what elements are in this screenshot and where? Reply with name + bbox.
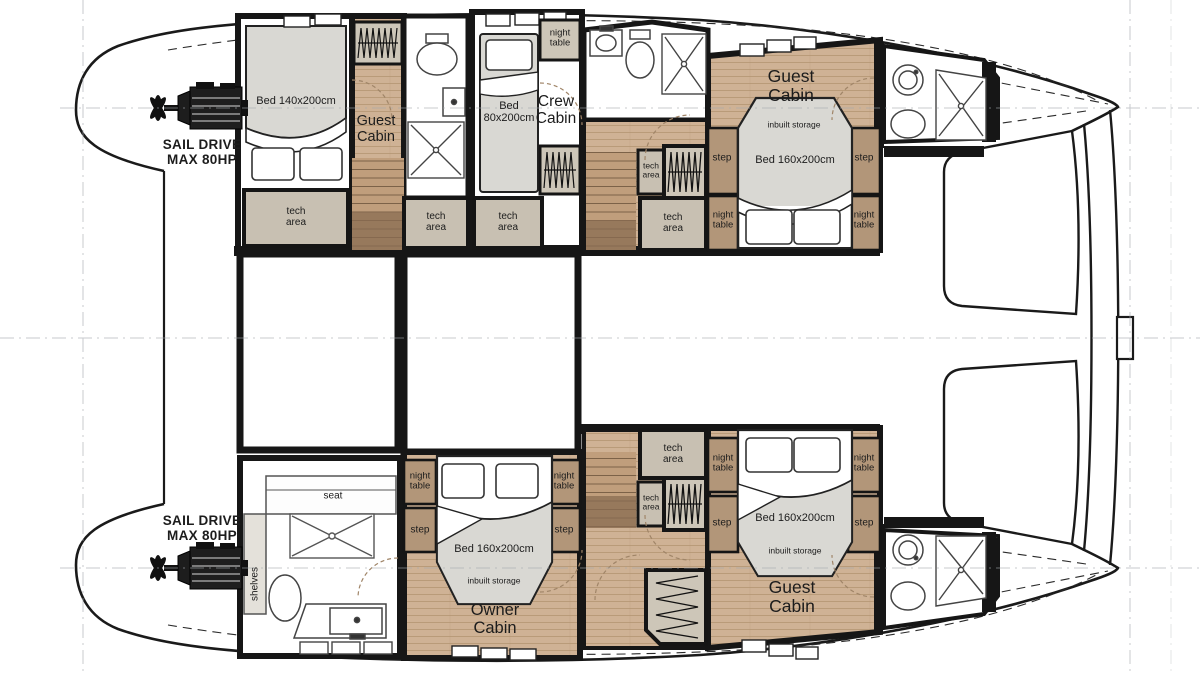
wardrobe-crew (540, 146, 580, 194)
toilet-aft-stbd (269, 575, 301, 621)
vanity-aft-stbd (294, 604, 386, 639)
shower-aft-port (408, 122, 464, 178)
pillow (746, 438, 792, 472)
night-table-box (404, 460, 436, 504)
toilet-fwd-stbd (891, 582, 925, 610)
toilet-fwd-port (891, 110, 925, 138)
tech-area-corridor-port (640, 198, 706, 250)
stairs-corridor-port (586, 152, 636, 250)
tech-area-corridor-stbd (640, 430, 706, 478)
shower-mid-port (662, 34, 706, 94)
engine-stbd (148, 542, 248, 589)
pillow (442, 464, 484, 498)
night-table-crew (540, 20, 580, 60)
pillow (300, 148, 342, 180)
step-box (404, 508, 436, 552)
wardrobe-corridor-port (664, 146, 706, 198)
trampoline-bottom (944, 361, 1079, 544)
pillow (252, 148, 294, 180)
tech-area-bath-port (404, 198, 468, 248)
sink-mid-port (590, 26, 622, 56)
wardrobe-corridor-stbd (664, 478, 706, 530)
tech-area-corridor-stbd-small (638, 482, 664, 526)
sink-fwd-stbd (893, 535, 923, 565)
toilet-mid-port (626, 30, 654, 78)
floor-plan-drawing (0, 0, 1200, 675)
tank-room-fwd (404, 254, 578, 452)
trampoline-top (944, 131, 1079, 314)
step-box (708, 496, 738, 552)
night-table-box (708, 438, 738, 492)
shower-fwd-port (936, 70, 986, 140)
shower-fwd-stbd (936, 536, 986, 606)
step-box (708, 128, 738, 194)
wall-fwd-stbd-top (884, 517, 984, 528)
pillow (486, 40, 532, 70)
wall-fwd-port-bottom (884, 146, 984, 157)
bed-owner (437, 456, 552, 604)
tech-area-crew (474, 198, 542, 248)
stairs-corridor-stbd (586, 452, 636, 528)
bed-guest-fwd-stbd (738, 430, 852, 576)
pillow (496, 464, 538, 498)
wardrobe-guest-aft (354, 22, 402, 64)
tech-area-corridor-port-small (638, 150, 664, 194)
stairs-guest-aft (352, 158, 404, 250)
shelf-wardrobe-stbd (646, 570, 706, 644)
tank-room-aft (240, 254, 398, 450)
engine-port (148, 82, 248, 129)
tech-area-guest-aft (244, 190, 348, 246)
seat-bench (266, 476, 396, 514)
drawers-aft-stbd (300, 642, 392, 654)
storage-box (290, 514, 374, 558)
bed-guest-fwd-port (738, 98, 852, 248)
pillow (794, 210, 840, 244)
pillow (746, 210, 792, 244)
rooms (234, 12, 998, 658)
catamaran-floor-plan: SAIL DRIVE MAX 80HP SAIL DRIVE MAX 80HP … (0, 0, 1200, 675)
pillow (794, 438, 840, 472)
sink-fwd-port (893, 65, 923, 95)
bed-crew (480, 34, 538, 192)
sink-aft-port (443, 88, 465, 116)
night-table-box (708, 196, 738, 250)
